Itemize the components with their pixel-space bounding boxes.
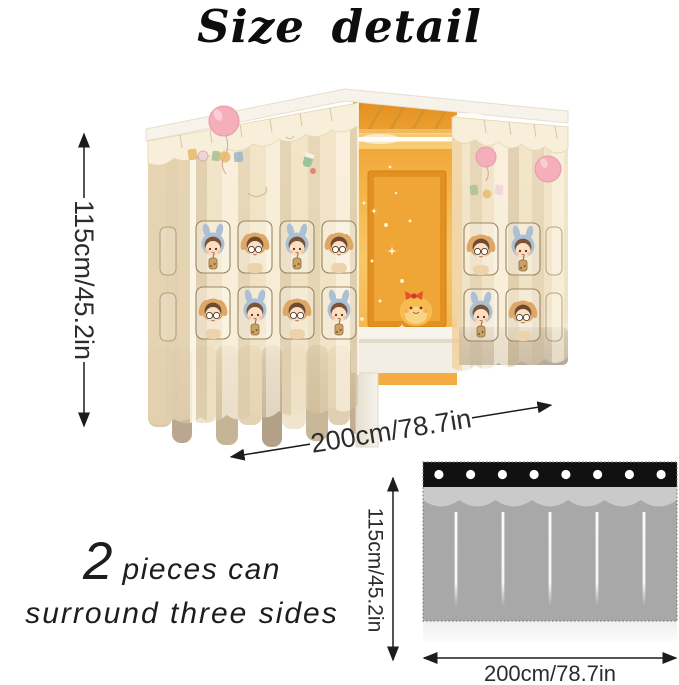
grommet-strip — [423, 462, 677, 487]
note-line2: surround three sides — [8, 597, 356, 631]
grommet-dot — [657, 470, 666, 479]
grommet-dot — [593, 470, 602, 479]
fold-highlight — [549, 512, 552, 606]
photo-height-label: 115cm/45.2in — [70, 200, 98, 360]
grommet-dot — [466, 470, 475, 479]
width-arrow-left — [231, 444, 310, 457]
curtain-hem — [423, 621, 677, 641]
grommet-dot — [530, 470, 539, 479]
grommet-dot — [434, 470, 443, 479]
photo-height-dimension: 115cm/45.2in — [70, 128, 98, 432]
fold-highlight — [643, 512, 646, 606]
diagram-height-label: 115cm/45.2in — [364, 508, 387, 633]
note-count: 2 — [83, 535, 112, 588]
left-curtain — [148, 95, 358, 431]
grommet-dot — [498, 470, 507, 479]
note: 2 pieces can surround three sides — [8, 535, 356, 631]
curtain-size-diagram: 115cm/45.2in 200cm/78.7in — [349, 454, 679, 685]
note-line1: 2 pieces can — [8, 535, 356, 588]
diagram-width-label: 200cm/78.7in — [484, 661, 616, 685]
right-curtain — [452, 111, 568, 381]
size-detail-page: Size detail — [0, 0, 679, 685]
note-line1-text: pieces can — [123, 553, 281, 587]
fold-highlight — [502, 512, 505, 606]
fold-highlight — [596, 512, 599, 606]
fold-highlight — [455, 512, 458, 606]
page-title: Size detail — [0, 0, 679, 53]
grommet-dot — [625, 470, 634, 479]
width-arrow-right — [472, 405, 551, 418]
grommet-dot — [561, 470, 570, 479]
